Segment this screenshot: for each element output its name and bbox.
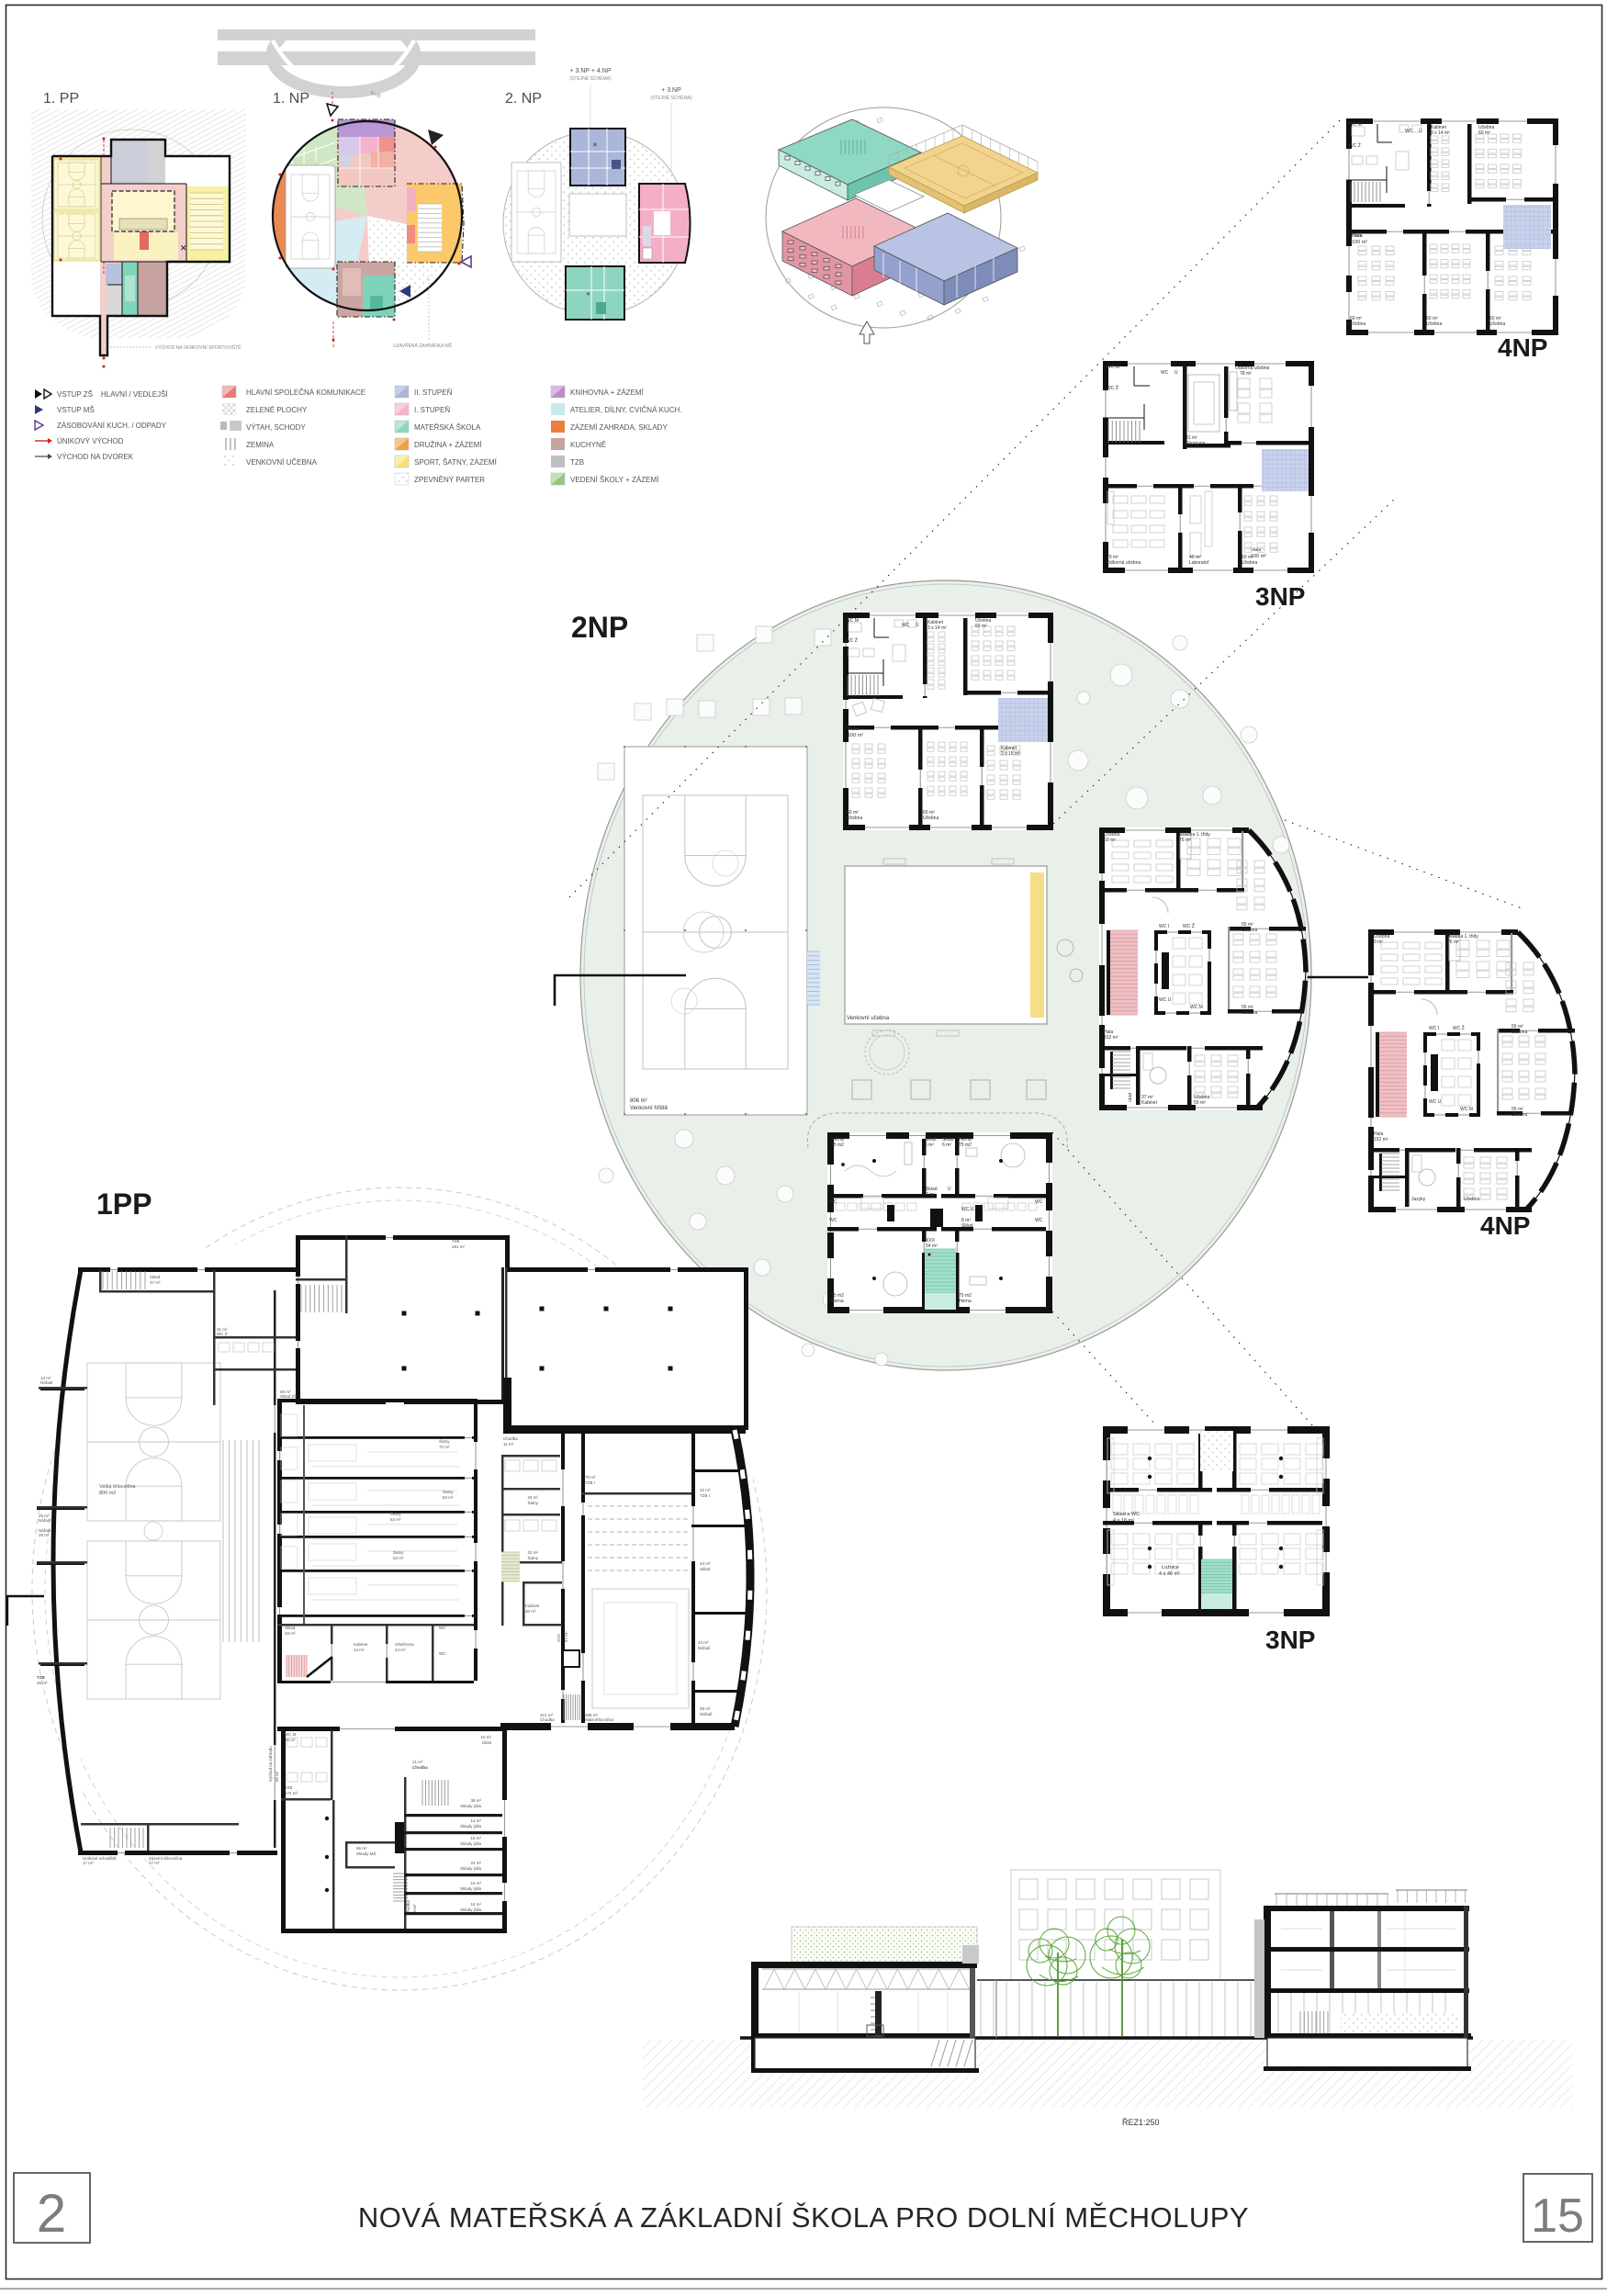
svg-text:Východ na zahradu: Východ na zahradu: [268, 1746, 273, 1782]
svg-text:Učebna: Učebna: [1464, 1197, 1479, 1202]
svg-text:152 m²: 152 m²: [1374, 1137, 1388, 1142]
svg-text:53 m²: 53 m²: [393, 1556, 404, 1560]
svg-text:Sborovna: Sborovna: [1186, 441, 1206, 446]
svg-text:Ú: Ú: [1174, 369, 1178, 376]
svg-text:WC: WC: [829, 1218, 837, 1223]
svg-text:Sklad: Sklad: [961, 1223, 973, 1229]
svg-text:Chodba: Chodba: [412, 1765, 428, 1770]
svg-text:WC M: WC M: [1107, 365, 1119, 370]
svg-text:38 m²: 38 m²: [470, 1798, 481, 1803]
svg-text:Šatny: Šatny: [439, 1438, 450, 1444]
svg-text:TZB I: TZB I: [700, 1493, 710, 1498]
svg-text:100 m²: 100 m²: [848, 733, 863, 738]
svg-text:Učebna: Učebna: [1242, 560, 1257, 566]
svg-text:32 m²: 32 m²: [527, 1550, 538, 1555]
svg-text:Nářadí: Nářadí: [40, 1380, 53, 1385]
svg-text:60 m²: 60 m²: [1478, 130, 1490, 136]
svg-text:TZB: TZB: [37, 1675, 45, 1680]
svg-text:6 m²: 6 m²: [942, 1142, 951, 1148]
svg-text:56 m²: 56 m²: [356, 1846, 367, 1851]
svg-text:Ú: Ú: [948, 1186, 951, 1192]
svg-text:ŘEZ1:250: ŘEZ1:250: [1122, 2118, 1160, 2127]
svg-text:Laboratoř: Laboratoř: [1189, 560, 1209, 566]
svg-text:21 m²: 21 m²: [412, 1760, 423, 1764]
svg-text:44 m²: 44 m²: [700, 1561, 711, 1566]
svg-text:WC: WC: [1161, 370, 1169, 376]
svg-text:11 m²: 11 m²: [503, 1442, 514, 1446]
svg-text:33 m²: 33 m²: [285, 1631, 296, 1636]
svg-text:7 m²: 7 m²: [926, 1192, 935, 1198]
svg-text:60 m²: 60 m²: [1104, 838, 1116, 843]
svg-text:24 m²: 24 m²: [470, 1861, 481, 1865]
svg-text:WC U: WC U: [1429, 1099, 1442, 1105]
svg-text:152 m²: 152 m²: [1104, 1035, 1118, 1041]
svg-text:1. PP: 1. PP: [43, 91, 79, 107]
svg-text:ZELENÉ PLOCHY: ZELENÉ PLOCHY: [246, 406, 308, 414]
svg-text:WC Ž: WC Ž: [1453, 1024, 1465, 1031]
svg-text:34 m²: 34 m²: [527, 1495, 538, 1500]
svg-text:VSTUP ZŠ HLAVNÍ / VEDLEJŠÍ: VSTUP ZŠ HLAVNÍ / VEDLEJŠÍ: [57, 390, 168, 399]
svg-text:ZEMINA: ZEMINA: [246, 441, 275, 449]
svg-text:+ 3.NP: + 3.NP: [661, 87, 681, 94]
svg-text:DRUŽINA + ZÁZEMÍ: DRUŽINA + ZÁZEMÍ: [414, 441, 482, 449]
svg-text:2. NP: 2. NP: [505, 91, 542, 107]
svg-text:WC: WC: [439, 1651, 446, 1656]
svg-text:Nářadí: Nářadí: [700, 1712, 713, 1716]
svg-text:ATELIER, DÍLNY, CVIČNÁ KUCH.: ATELIER, DÍLNY, CVIČNÁ KUCH.: [570, 406, 682, 414]
svg-text:VÝCHOD NA VENKOVNÍ SPORTOVIŠTĚ: VÝCHOD NA VENKOVNÍ SPORTOVIŠTĚ: [155, 343, 242, 351]
svg-text:174 m²: 174 m²: [285, 1791, 298, 1795]
svg-text:Sklad: Sklad: [285, 1626, 296, 1630]
svg-text:HLAVNÍ SPOLEČNÁ KOMUNIKACE: HLAVNÍ SPOLEČNÁ KOMUNIKACE: [246, 388, 365, 397]
svg-text:16 m²: 16 m²: [470, 1836, 481, 1840]
svg-text:WC U: WC U: [961, 1207, 974, 1212]
svg-text:57 m²: 57 m²: [564, 1631, 568, 1642]
svg-text:59 m²: 59 m²: [1194, 1100, 1206, 1106]
svg-text:KUCHYNĚ: KUCHYNĚ: [570, 441, 606, 449]
svg-text:KNIHOVNA + ZÁZEMÍ: KNIHOVNA + ZÁZEMÍ: [570, 388, 645, 397]
svg-text:4NP: 4NP: [1498, 333, 1547, 362]
svg-text:VSTUP MŠ: VSTUP MŠ: [57, 406, 95, 414]
svg-text:Sklad: Sklad: [150, 1275, 161, 1279]
svg-text:Kabinet: Kabinet: [354, 1642, 368, 1647]
svg-text:45 m²: 45 m²: [37, 1681, 48, 1685]
svg-text:4NP: 4NP: [1480, 1211, 1530, 1240]
svg-text:1PP: 1PP: [96, 1187, 152, 1221]
svg-text:Odborná učebna: Odborná učebna: [1107, 560, 1141, 566]
svg-text:3 x 14 m²: 3 x 14 m²: [1431, 130, 1450, 136]
svg-text:27 m²: 27 m²: [149, 1861, 160, 1865]
svg-text:WC: WC: [1035, 1199, 1043, 1205]
svg-text:3 x 15 m²: 3 x 15 m²: [1001, 751, 1020, 757]
svg-text:ZÁSOBOVÁNÍ KUCH. / ODPADY: ZÁSOBOVÁNÍ KUCH. / ODPADY: [57, 422, 167, 430]
svg-text:75 m2: 75 m2: [959, 1142, 972, 1148]
svg-text:Kabinet: Kabinet: [525, 1604, 540, 1608]
svg-text:Sklady MŠ: Sklady MŠ: [356, 1851, 376, 1856]
svg-text:54 m²: 54 m²: [926, 1244, 938, 1249]
svg-text:Učebna: Učebna: [923, 816, 938, 821]
svg-text:Sklady jídla: Sklady jídla: [460, 1824, 482, 1829]
svg-text:6 m²: 6 m²: [925, 1142, 934, 1148]
svg-text:TZB: TZB: [570, 458, 584, 467]
svg-text:VEDENÍ ŠKOLY + ZÁZEMÍ: VEDENÍ ŠKOLY + ZÁZEMÍ: [570, 476, 659, 484]
svg-text:14 m²: 14 m²: [470, 1818, 481, 1823]
svg-text:43 m²: 43 m²: [698, 1640, 709, 1645]
svg-text:2: 2: [37, 2184, 66, 2244]
svg-text:Herna: Herna: [959, 1299, 972, 1304]
svg-text:WC: WC: [902, 623, 910, 628]
svg-text:(STEJNÉ SCHÉMA): (STEJNÉ SCHÉMA): [650, 95, 692, 101]
svg-text:Učebna: Učebna: [1511, 1112, 1527, 1118]
svg-text:WC M: WC M: [285, 1732, 297, 1737]
svg-text:Ú: Ú: [1419, 128, 1422, 134]
svg-text:4 x 46 m²: 4 x 46 m²: [1159, 1571, 1180, 1577]
svg-text:Šatny: Šatny: [443, 1489, 454, 1494]
svg-text:78 m²: 78 m²: [1240, 371, 1252, 377]
svg-text:24 m²: 24 m²: [395, 1648, 406, 1652]
svg-text:WC: WC: [829, 1199, 837, 1205]
svg-text:WC U: WC U: [1159, 997, 1172, 1003]
svg-text:Učebna: Učebna: [1489, 321, 1505, 327]
svg-text:3NP: 3NP: [1265, 1626, 1315, 1654]
svg-text:Šatny: Šatny: [390, 1511, 401, 1516]
svg-text:Šatny: Šatny: [393, 1549, 404, 1555]
svg-text:2NP: 2NP: [571, 611, 628, 644]
svg-text:Venkovní hřiště: Venkovní hřiště: [630, 1106, 669, 1111]
svg-text:✕: ✕: [592, 142, 598, 149]
svg-text:24 m²: 24 m²: [354, 1648, 365, 1652]
svg-text:29 m²: 29 m²: [39, 1533, 50, 1537]
svg-text:Jazyky: Jazyky: [1411, 1197, 1426, 1202]
svg-text:Herna: Herna: [831, 1299, 844, 1304]
svg-text:Učebna: Učebna: [1242, 1010, 1257, 1016]
svg-text:Úklid: Úklid: [1127, 1093, 1132, 1102]
svg-text:Sklady jídla: Sklady jídla: [460, 1866, 482, 1871]
svg-text:806 m²: 806 m²: [630, 1098, 647, 1104]
svg-text:16 m²: 16 m²: [470, 1902, 481, 1907]
svg-text:75 m2: 75 m2: [831, 1142, 844, 1148]
svg-text:Sklad ZŠ: Sklad ZŠ: [280, 1393, 297, 1399]
svg-text:30 m²: 30 m²: [285, 1738, 296, 1742]
svg-text:76 m²: 76 m²: [1447, 940, 1459, 945]
svg-text:Sklady jídla: Sklady jídla: [460, 1908, 482, 1912]
svg-text:WC M: WC M: [1460, 1107, 1473, 1112]
svg-text:Šatny: Šatny: [527, 1555, 538, 1560]
svg-text:37 m²: 37 m²: [150, 1280, 161, 1285]
svg-text:Venkovní učebna: Venkovní učebna: [847, 1016, 890, 1021]
svg-text:Hala: Hala: [1352, 233, 1364, 239]
svg-text:WC Ž: WC Ž: [1183, 922, 1195, 929]
svg-text:VENKOVNÍ UČEBNA: VENKOVNÍ UČEBNA: [246, 458, 318, 467]
svg-text:UZAVŘENÁ ZAHRÁDKA MŠ: UZAVŘENÁ ZAHRÁDKA MŠ: [393, 342, 453, 349]
svg-text:Nářadí: Nářadí: [39, 1518, 51, 1523]
svg-text:WC Ž: WC Ž: [1107, 384, 1118, 391]
svg-text:9 m²: 9 m²: [1374, 940, 1383, 945]
svg-text:+ 3.NP + 4.NP: + 3.NP + 4.NP: [569, 68, 611, 74]
svg-text:I. STUPEŇ: I. STUPEŇ: [414, 406, 450, 414]
svg-text:Ošetřovna: Ošetřovna: [395, 1642, 414, 1647]
svg-text:✕: ✕: [586, 292, 590, 298]
svg-text:Malá tělocvična: Malá tělocvična: [585, 1717, 614, 1722]
svg-text:XXX: XXX: [556, 1634, 561, 1642]
svg-text:ÚNIKOVÝ VÝCHOD: ÚNIKOVÝ VÝCHOD: [57, 437, 124, 445]
svg-text:Velká tělocvična: Velká tělocvična: [99, 1484, 136, 1490]
svg-text:Chodba: Chodba: [540, 1717, 555, 1722]
svg-text:28 m²: 28 m²: [700, 1706, 711, 1711]
svg-text:17 m²: 17 m²: [83, 1861, 94, 1865]
svg-text:Učebna: Učebna: [1511, 1030, 1527, 1035]
svg-text:WC Ž: WC Ž: [217, 1330, 228, 1336]
svg-text:SPORT, ŠATNY, ZÁZEMÍ: SPORT, ŠATNY, ZÁZEMÍ: [414, 458, 498, 467]
svg-text:4 x 18 m²: 4 x 18 m²: [1113, 1518, 1134, 1524]
svg-text:100 m²: 100 m²: [1352, 240, 1367, 245]
svg-text:TZB I: TZB I: [585, 1480, 595, 1485]
svg-text:15: 15: [1531, 2189, 1584, 2243]
svg-text:TZB: TZB: [452, 1239, 460, 1244]
svg-text:800 m2: 800 m2: [99, 1491, 116, 1496]
svg-text:Ú: Ú: [916, 622, 919, 628]
svg-text:NOVÁ MATEŘSKÁ A ZÁKLADNÍ ŠKOLA: NOVÁ MATEŘSKÁ A ZÁKLADNÍ ŠKOLA PRO DOLNÍ…: [358, 2201, 1249, 2234]
svg-text:Učebna: Učebna: [1350, 321, 1365, 327]
svg-text:WC Ž: WC Ž: [846, 636, 858, 644]
svg-text:30 m²: 30 m²: [525, 1609, 536, 1614]
svg-text:70 m²: 70 m²: [585, 1475, 596, 1480]
svg-text:Ložnice: Ložnice: [1162, 1565, 1179, 1570]
svg-text:WC: WC: [1405, 129, 1413, 134]
svg-text:72 m²: 72 m²: [439, 1445, 450, 1449]
svg-text:MATEŘSKÁ ŠKOLA: MATEŘSKÁ ŠKOLA: [414, 423, 481, 432]
svg-text:281 m²: 281 m²: [452, 1244, 466, 1249]
svg-text:Sklad: Sklad: [700, 1567, 711, 1571]
svg-text:Kabinet: Kabinet: [1141, 1100, 1158, 1106]
svg-text:WC M: WC M: [846, 618, 859, 624]
svg-text:Sklady jídla: Sklady jídla: [460, 1886, 482, 1891]
svg-text:Úklid: Úklid: [482, 1739, 491, 1745]
svg-text:3NP: 3NP: [1255, 582, 1305, 611]
svg-text:Sklady jídla: Sklady jídla: [460, 1841, 482, 1846]
svg-text:76 m²: 76 m²: [1179, 838, 1191, 843]
svg-text:Chodba: Chodba: [503, 1436, 518, 1441]
svg-text:Učebna: Učebna: [847, 816, 862, 821]
svg-text:ZPEVNĚNÝ PARTER: ZPEVNĚNÝ PARTER: [414, 476, 485, 484]
svg-text:53 m²: 53 m²: [390, 1517, 401, 1522]
svg-text:WC M: WC M: [1190, 1005, 1203, 1010]
svg-text:53 m²: 53 m²: [443, 1495, 454, 1500]
svg-text:ZÁZEMÍ ZAHRADA, SKLADY: ZÁZEMÍ ZAHRADA, SKLADY: [570, 423, 668, 432]
svg-text:WC I: WC I: [1429, 1026, 1439, 1031]
svg-text:Učebna: Učebna: [1426, 321, 1442, 327]
svg-text:3 x 14 m²: 3 x 14 m²: [927, 625, 947, 631]
svg-text:(STEJNÉ SCHÉMA): (STEJNÉ SCHÉMA): [569, 75, 612, 82]
svg-text:WC M: WC M: [1349, 122, 1362, 128]
svg-text:Sklad a WC: Sklad a WC: [1113, 1512, 1140, 1517]
svg-text:WC Ž: WC Ž: [1349, 141, 1361, 149]
svg-text:WC: WC: [1035, 1218, 1043, 1223]
svg-text:WC I: WC I: [1159, 924, 1169, 929]
svg-text:Sklady jídla: Sklady jídla: [460, 1804, 482, 1808]
svg-text:Učebna: Učebna: [1242, 928, 1257, 933]
svg-text:Nářadí: Nářadí: [698, 1646, 711, 1650]
svg-text:TZB: TZB: [285, 1785, 293, 1790]
svg-text:16 m²: 16 m²: [470, 1881, 481, 1885]
svg-text:85 m²: 85 m²: [275, 1771, 279, 1782]
svg-text:WC: WC: [439, 1626, 446, 1630]
svg-text:1. NP: 1. NP: [273, 91, 309, 107]
svg-text:II. STUPEŇ: II. STUPEŇ: [414, 388, 453, 397]
svg-text:VÝCHOD NA DVOREK: VÝCHOD NA DVOREK: [57, 453, 134, 461]
svg-text:Šatny: Šatny: [527, 1500, 538, 1505]
svg-text:Hala: Hala: [848, 726, 860, 732]
svg-text:60 m²: 60 m²: [975, 624, 987, 629]
svg-text:VÝTAH, SCHODY: VÝTAH, SCHODY: [246, 423, 306, 432]
svg-text:32 m²: 32 m²: [700, 1488, 711, 1492]
svg-text:✕: ✕: [180, 243, 187, 253]
svg-text:10 m²: 10 m²: [480, 1735, 491, 1739]
